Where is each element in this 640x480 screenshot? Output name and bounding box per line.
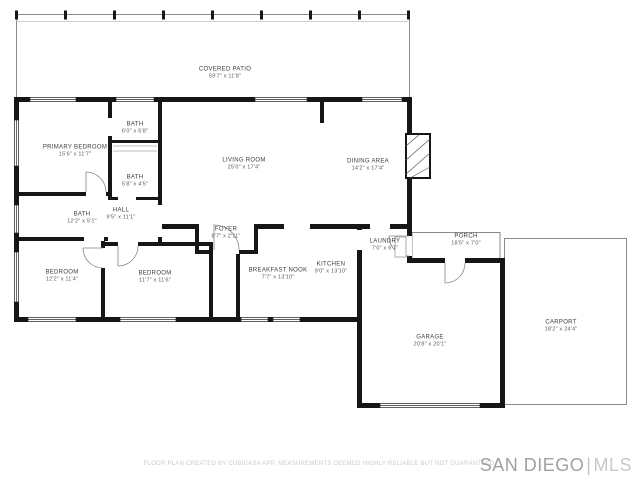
watermark-secondary: MLS	[593, 455, 632, 476]
patio-porch-carport-outlines	[17, 15, 627, 405]
floorplan-drawing	[0, 0, 640, 480]
bathtub-icon	[113, 146, 157, 151]
fireplace-icon	[406, 134, 430, 178]
watermark-primary: SAN DIEGO	[480, 455, 585, 476]
walls	[14, 97, 505, 408]
mls-watermark: SAN DIEGO | MLS	[480, 455, 632, 476]
watermark-separator: |	[586, 455, 591, 476]
washer-icon	[395, 237, 406, 257]
